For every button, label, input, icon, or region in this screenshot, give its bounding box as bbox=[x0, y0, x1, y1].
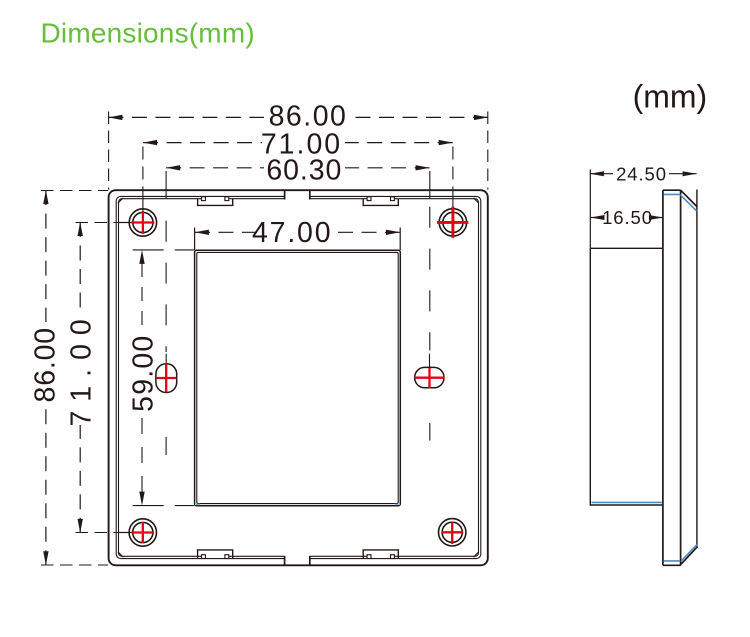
svg-text:60.30: 60.30 bbox=[266, 154, 342, 186]
svg-text:86.00: 86.00 bbox=[30, 327, 62, 402]
svg-text:Dimensions(mm): Dimensions(mm) bbox=[41, 17, 255, 48]
svg-text:24.50: 24.50 bbox=[616, 164, 667, 185]
svg-text:47.00: 47.00 bbox=[252, 217, 332, 249]
svg-text:(mm): (mm) bbox=[633, 79, 708, 115]
svg-text:59.00: 59.00 bbox=[127, 335, 159, 412]
svg-text:16.50: 16.50 bbox=[602, 207, 653, 228]
svg-text:71.00: 71.00 bbox=[66, 310, 98, 426]
